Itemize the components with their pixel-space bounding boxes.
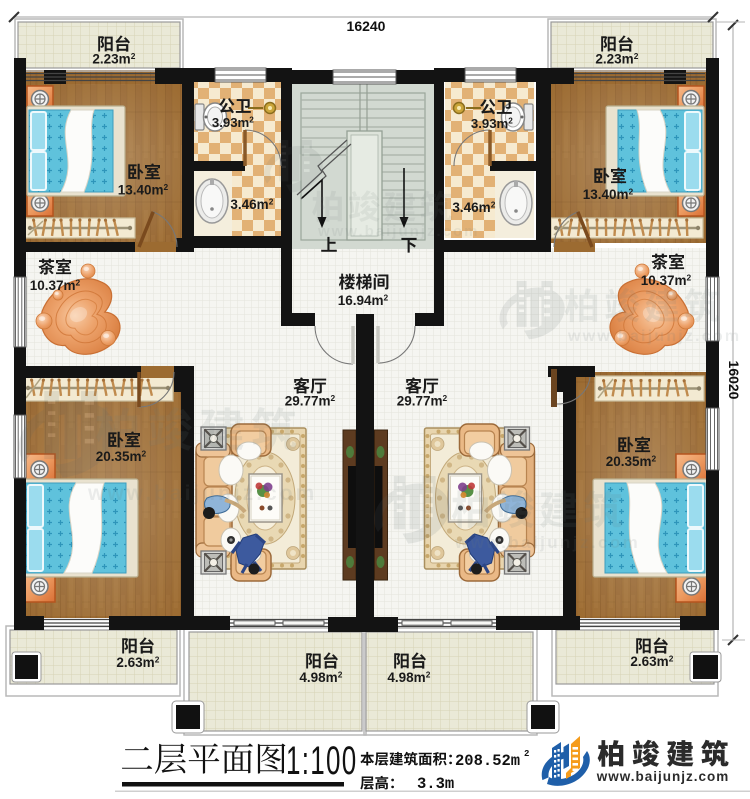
svg-text:1:100: 1:100: [286, 738, 358, 783]
svg-text:2.63m: 2.63m: [630, 654, 668, 669]
svg-text:2.63m: 2.63m: [116, 655, 154, 670]
svg-text:2: 2: [164, 182, 169, 192]
svg-text:2: 2: [443, 393, 448, 403]
svg-text:2: 2: [131, 51, 136, 61]
svg-text:2: 2: [249, 116, 254, 125]
svg-text:10.37m: 10.37m: [641, 273, 687, 288]
svg-text:3.46m: 3.46m: [452, 200, 490, 215]
svg-text:16020: 16020: [726, 361, 742, 400]
svg-text:16240: 16240: [347, 18, 386, 34]
svg-text:2: 2: [331, 393, 336, 403]
svg-text:2: 2: [142, 449, 147, 459]
svg-text:3.93m: 3.93m: [212, 115, 249, 130]
svg-text:www.baijunjz.com: www.baijunjz.com: [317, 223, 479, 240]
svg-text:29.77m: 29.77m: [397, 393, 443, 408]
svg-text:16.94m: 16.94m: [338, 293, 384, 308]
svg-text:2: 2: [338, 670, 343, 680]
svg-text:2: 2: [508, 117, 513, 126]
svg-text:2: 2: [669, 654, 674, 664]
svg-text:20.35m: 20.35m: [606, 454, 652, 469]
svg-text:2: 2: [269, 197, 274, 207]
svg-text:2: 2: [629, 187, 634, 197]
svg-text:2: 2: [634, 51, 639, 61]
svg-text:www.baijunjz.com: www.baijunjz.com: [87, 482, 317, 505]
svg-text:2.23m: 2.23m: [92, 51, 130, 66]
svg-text:3.3m: 3.3m: [417, 775, 454, 793]
svg-text:2: 2: [491, 200, 496, 210]
svg-text:10.37m: 10.37m: [30, 278, 76, 293]
svg-text:2.23m: 2.23m: [595, 51, 633, 66]
svg-text:29.77m: 29.77m: [285, 393, 331, 408]
svg-text:4.98m: 4.98m: [299, 670, 337, 685]
svg-text:www.baijunjz.com: www.baijunjz.com: [567, 328, 741, 345]
svg-text:20.35m: 20.35m: [96, 449, 142, 464]
svg-text:2: 2: [652, 454, 657, 464]
svg-text:208.52m: 208.52m: [455, 752, 520, 770]
svg-text:2: 2: [426, 670, 431, 680]
svg-text:3.93m: 3.93m: [471, 116, 508, 131]
svg-text:4.98m: 4.98m: [387, 670, 425, 685]
svg-text:2: 2: [524, 749, 529, 759]
svg-text:13.40m: 13.40m: [118, 182, 164, 197]
svg-text:www.baijunjz.com: www.baijunjz.com: [596, 769, 730, 784]
svg-text:2: 2: [687, 273, 692, 283]
svg-text:2: 2: [155, 655, 160, 665]
svg-text:3.46m: 3.46m: [230, 197, 268, 212]
svg-text:2: 2: [76, 278, 81, 288]
svg-text:13.40m: 13.40m: [583, 187, 629, 202]
svg-text:2: 2: [384, 293, 389, 303]
svg-text:www.baijunjz.com: www.baijunjz.com: [454, 533, 640, 552]
